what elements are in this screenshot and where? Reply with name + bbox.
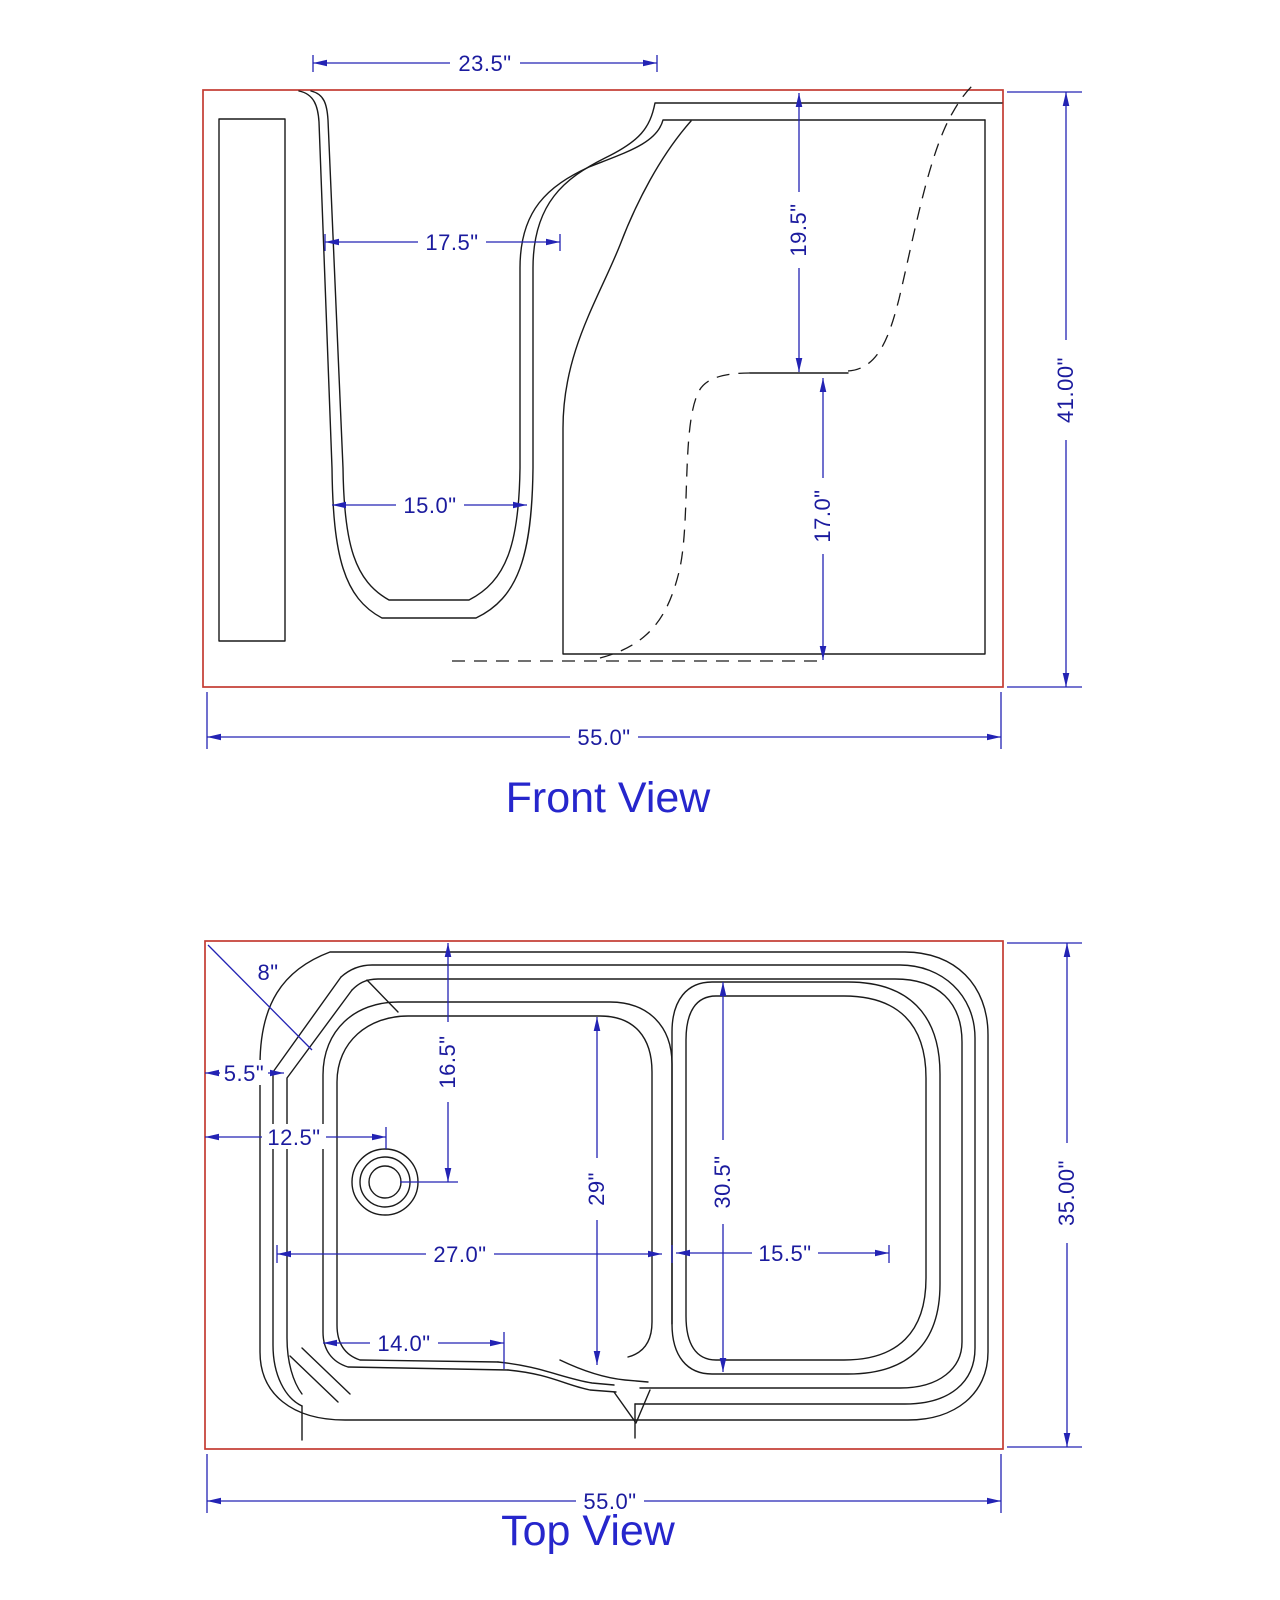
top-view-title: Top View (501, 1507, 676, 1555)
dim-label: 27.0" (433, 1242, 486, 1267)
dim-label: 5.5" (224, 1061, 264, 1086)
dim-label: 35.00" (1054, 1160, 1079, 1226)
hidden-seat-curve-left (600, 373, 750, 658)
threshold-curve (498, 1362, 614, 1385)
dim-drain-from-left: 12.5" (205, 1124, 386, 1150)
dim-label: 29" (584, 1172, 609, 1206)
top-view: 8" 5.5" 12.5" 16.5" 29" (205, 941, 1082, 1555)
dim-label: 16.5" (435, 1035, 460, 1088)
door-threshold (302, 1360, 650, 1440)
dim-footwell-width: 15.0" (332, 492, 527, 518)
dim-label: 23.5" (458, 51, 511, 76)
dim-footwell-length: 29" (584, 1017, 610, 1365)
corner-chamfer-edge (367, 980, 398, 1012)
front-view-title: Front View (506, 774, 712, 822)
front-view-hidden-lines (452, 85, 973, 661)
threshold-curve (508, 1370, 616, 1392)
rim-inner-left (287, 990, 352, 1394)
dim-label: 17.0" (810, 489, 835, 542)
door-extent-ticks (302, 1404, 635, 1440)
rim-middle-left (273, 977, 341, 1406)
floor-pan-outline (563, 120, 985, 654)
dim-label: 55.0" (577, 725, 630, 750)
dim-footwell-span: 27.0" (277, 1241, 672, 1267)
dim-door-top-width: 23.5" (313, 50, 657, 76)
drain-circle-inner (369, 1166, 401, 1198)
dim-label: 14.0" (377, 1331, 430, 1356)
door-wall-outer (299, 91, 1002, 618)
dim-label: 30.5" (710, 1155, 735, 1208)
dim-overall-height: 41.00" (1007, 92, 1082, 687)
dim-rim-offset: 5.5" (205, 1060, 284, 1086)
dim-upper-right-height: 19.5" (786, 93, 812, 372)
top-view-outline (260, 952, 988, 1440)
dim-corner-chamfer: 8" (208, 945, 312, 1050)
left-panel (219, 119, 285, 641)
dim-door-opening-width: 14.0" (323, 1330, 504, 1369)
dim-top-overall-width: 55.0" (207, 1454, 1001, 1514)
door-wall-inner (311, 91, 985, 600)
dim-front-overall-width: 55.0" (207, 692, 1001, 750)
dim-basin-width: 15.5" (676, 1240, 889, 1266)
dim-lower-right-height: 17.0" (810, 378, 836, 660)
dim-label: 41.00" (1053, 357, 1078, 423)
dim-label: 15.5" (758, 1241, 811, 1266)
dim-label: 8" (257, 960, 278, 985)
hidden-seat-curve-right (848, 85, 973, 371)
drawing-canvas: 23.5" 17.5" 15.0" 19.5" 17.0" (0, 0, 1280, 1600)
dim-overall-depth: 35.00" (1007, 943, 1082, 1447)
dim-label: 17.5" (425, 230, 478, 255)
technical-drawing-page: 23.5" 17.5" 15.0" 19.5" 17.0" (0, 0, 1280, 1600)
front-view-envelope (203, 90, 1003, 687)
threshold-seal-flap (614, 1390, 650, 1423)
dim-label: 19.5" (786, 203, 811, 256)
dim-label: 15.0" (403, 493, 456, 518)
front-view-outline (219, 91, 1002, 654)
footwell-outer (323, 1002, 672, 1370)
footwell-corner-chamfers (290, 1348, 350, 1402)
front-view: 23.5" 17.5" 15.0" 19.5" 17.0" (203, 50, 1082, 822)
dim-label: 12.5" (267, 1125, 320, 1150)
dim-basin-length: 30.5" (710, 982, 736, 1372)
